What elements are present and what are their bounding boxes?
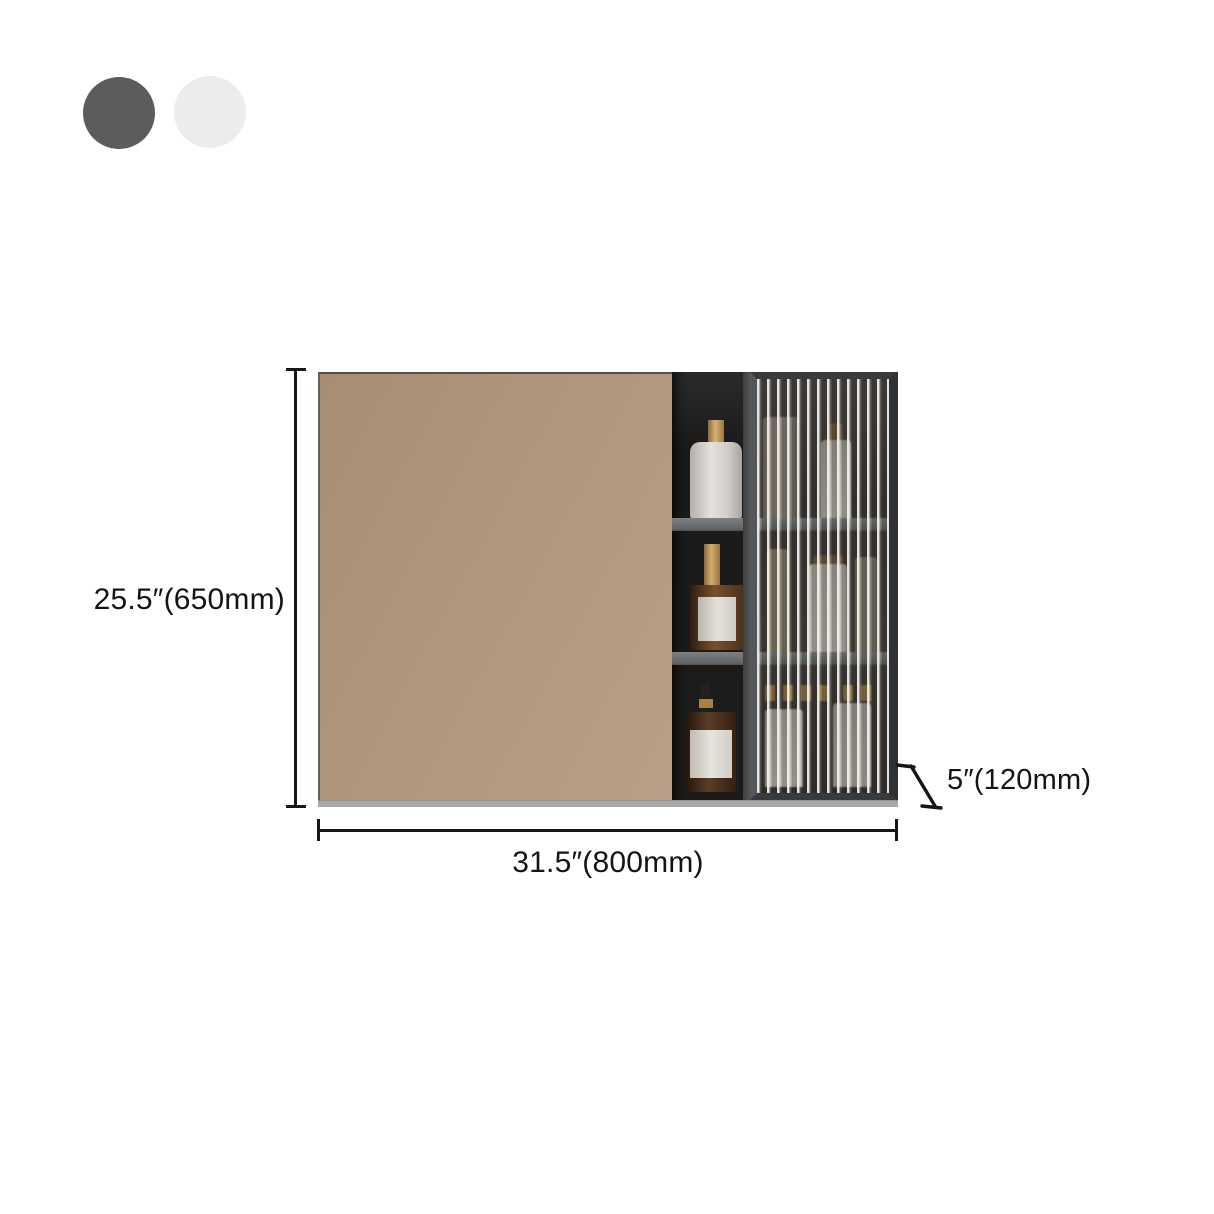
bottle-cap	[704, 544, 720, 586]
open-shelf-column	[672, 372, 750, 800]
pump-bottle	[686, 712, 736, 792]
height-dimension-cap-top	[286, 368, 306, 371]
white-bottle	[690, 442, 742, 518]
product-image-canvas: 25.5″(650mm) 31.5″(800mm) 5″(120mm)	[0, 0, 1214, 1214]
mirror-door-panel	[318, 372, 672, 800]
shelf-divider	[672, 518, 750, 531]
column-partition	[743, 372, 750, 800]
pump-collar	[699, 699, 713, 708]
fluted-glass-ribs	[757, 379, 889, 793]
depth-dimension-mark	[888, 752, 952, 818]
color-swatch-white[interactable]	[174, 76, 246, 148]
bottle-label	[698, 597, 736, 641]
bottle-label	[690, 730, 732, 778]
mirror-cabinet	[318, 372, 898, 807]
height-dimension-cap-bottom	[286, 805, 306, 808]
width-dimension-cap-right	[895, 819, 898, 841]
bottle-cap	[708, 420, 724, 443]
width-dimension-label: 31.5″(800mm)	[318, 846, 898, 879]
fluted-glass-door	[750, 372, 898, 800]
width-dimension-cap-left	[317, 819, 320, 841]
height-dimension-line	[294, 369, 297, 807]
height-dimension-label: 25.5″(650mm)	[88, 583, 285, 616]
amber-bottle	[690, 585, 744, 650]
shelf-divider	[672, 652, 750, 665]
cabinet-base-strip	[318, 800, 898, 807]
width-dimension-line	[318, 829, 898, 832]
color-swatch-dark-gray[interactable]	[83, 77, 155, 149]
depth-dimension-label: 5″(120mm)	[947, 764, 1091, 797]
